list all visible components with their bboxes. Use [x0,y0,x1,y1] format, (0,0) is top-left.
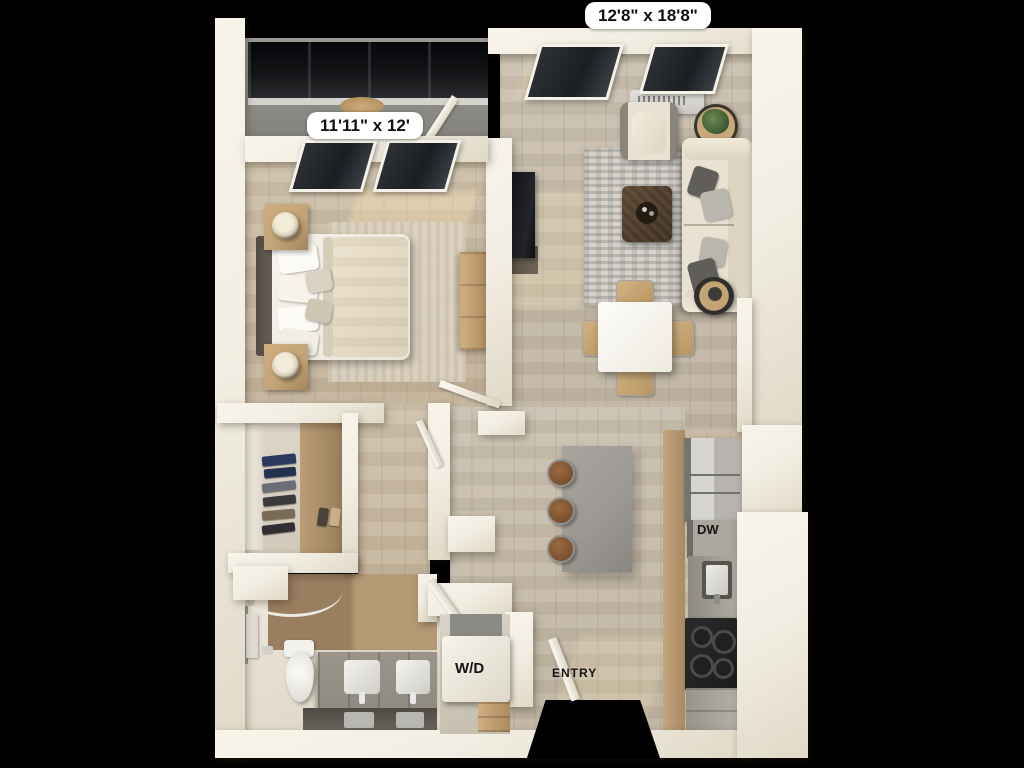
stove-burner [713,658,734,679]
vanity-sink [344,660,380,694]
bar-stool [547,459,575,487]
stove-burner [691,626,713,648]
towel [246,614,258,658]
mirror-sink-reflection [344,712,374,728]
refrigerator-door-line [686,492,740,494]
sofa-arm [684,138,750,160]
washer-dryer-label: W/D [455,660,484,677]
mirror-sink-reflection [396,712,424,728]
bar-stool [547,497,575,525]
stove-burner [690,654,714,678]
wall-vestibule-hall-divider [428,403,450,560]
laundry-niche-shadow [450,614,502,638]
living-room-window [639,44,729,94]
bar-stool [547,535,575,563]
closet-shelf [245,425,263,550]
dishwasher-label: DW [697,522,719,537]
closet-back-wall [300,422,342,555]
wall-hall-jog [448,516,495,552]
bistro-table-decor [708,287,722,301]
wall-bottom-exterior [215,730,750,758]
bed-duvet-fold [323,237,333,357]
armchair-cushion [632,112,666,154]
table-lamp [272,212,299,239]
bedroom-dimensions-label: 11'11" x 12' [307,112,423,139]
laundry-drawer [478,702,510,732]
bathroom-shelf [233,566,288,600]
tray-decor [649,211,654,216]
sofa-pillow [699,187,733,222]
kitchen-wall-panel [663,430,685,730]
kitchen-faucet [714,594,720,604]
bedroom-window [373,140,462,192]
dining-table [598,302,672,372]
sofa-seat-seam [684,224,734,226]
wall-bedroom-living-divider [486,138,512,406]
dining-chair [616,368,654,396]
entry-doorway-opening [527,700,660,758]
wall-kitchen-back [742,425,802,517]
vanity-sink [396,660,430,694]
toilet-paper-holder [262,646,273,655]
kitchen-cabinet [686,688,739,732]
wall-hall-segment [478,411,525,435]
wall-right-exterior [752,28,802,430]
bed-accent-pillow [304,268,333,294]
tray-decor [642,207,647,212]
plant [702,109,729,134]
stove-burner [712,630,736,654]
vanity-faucet [359,692,365,704]
coffee-table-tray [636,202,658,224]
entry-label: ENTRY [552,666,597,680]
bed-duvet [330,237,408,357]
refrigerator [684,438,742,522]
living-room-window [524,44,624,100]
table-lamp [272,352,299,379]
kitchen-sink-basin [706,565,728,595]
living-room-dimensions-label: 12'8" x 18'8" [585,2,711,29]
floor-plan: 12'8" x 18'8" 11'11" x 12' W/D DW ENTRY [0,0,1024,768]
wall-right-block [737,512,808,758]
bedroom-window [289,140,378,192]
refrigerator-door-line [686,474,740,476]
wall-bedroom-closet-divider [217,403,384,423]
balcony-railing [248,42,488,100]
wall-right-jog [737,298,752,432]
wall-left-exterior [215,18,245,758]
wall-closet-right [342,413,358,572]
vanity-faucet [410,692,416,704]
